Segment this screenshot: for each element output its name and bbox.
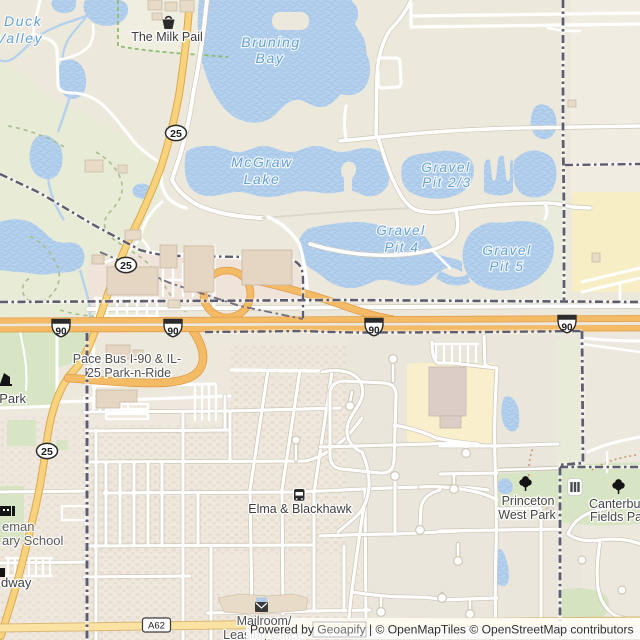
svg-text:Pit 5: Pit 5 <box>489 259 524 274</box>
svg-text:Gravel: Gravel <box>421 160 470 175</box>
svg-text:The Milk Pail: The Milk Pail <box>131 30 203 44</box>
svg-text:25 Park-n-Ride: 25 Park-n-Ride <box>87 366 171 380</box>
svg-text:Gravel: Gravel <box>482 243 531 258</box>
svg-text:Princeton: Princeton <box>502 494 555 508</box>
svg-text:Pace Bus I-90 & IL-: Pace Bus I-90 & IL- <box>73 352 181 366</box>
svg-text:Lake: Lake <box>244 171 281 187</box>
svg-text:Gravel: Gravel <box>376 223 425 238</box>
svg-text:A62: A62 <box>148 621 165 632</box>
svg-text:Bruning: Bruning <box>241 34 300 50</box>
svg-text:McGraw: McGraw <box>231 154 293 170</box>
svg-text:dway: dway <box>1 575 32 590</box>
svg-text:Elma & Blackhawk: Elma & Blackhawk <box>248 502 352 516</box>
svg-text:eman: eman <box>2 519 35 534</box>
svg-text:Duck: Duck <box>4 13 42 29</box>
svg-text:West Park: West Park <box>498 508 556 522</box>
svg-text:ary School: ary School <box>2 533 64 548</box>
svg-text:Canterbury: Canterbury <box>589 497 640 511</box>
svg-text:Valley: Valley <box>0 30 43 46</box>
svg-text:t Park: t Park <box>0 391 26 406</box>
svg-text:Powered by Geoapify | © OpenMa: Powered by Geoapify | © OpenMapTiles © O… <box>250 623 634 637</box>
svg-text:Fields Park: Fields Park <box>590 510 640 524</box>
svg-text:Bay: Bay <box>256 50 285 66</box>
svg-text:Pit 2/3: Pit 2/3 <box>422 175 471 190</box>
svg-text:Pit 4: Pit 4 <box>384 240 419 255</box>
